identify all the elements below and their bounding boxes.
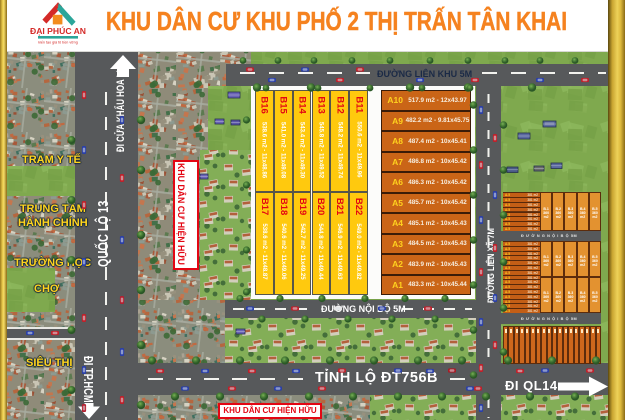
svg-text:ĐẠI PHÚC AN: ĐẠI PHÚC AN: [30, 25, 86, 36]
svg-text:kiến tạo giá trị bền vững: kiến tạo giá trị bền vững: [38, 41, 78, 45]
